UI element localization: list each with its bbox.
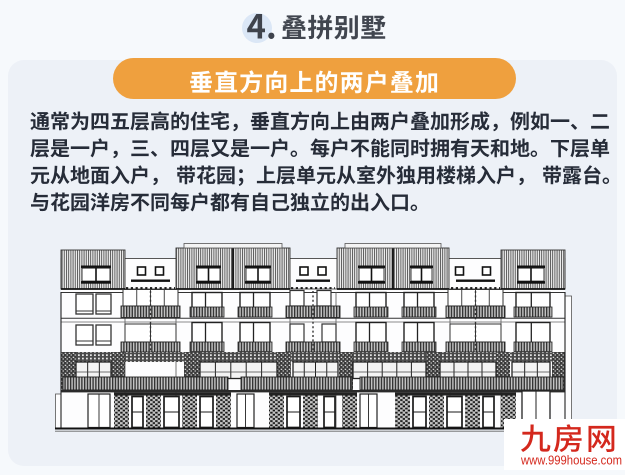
svg-text:www.999house.com: www.999house.com (520, 454, 622, 468)
